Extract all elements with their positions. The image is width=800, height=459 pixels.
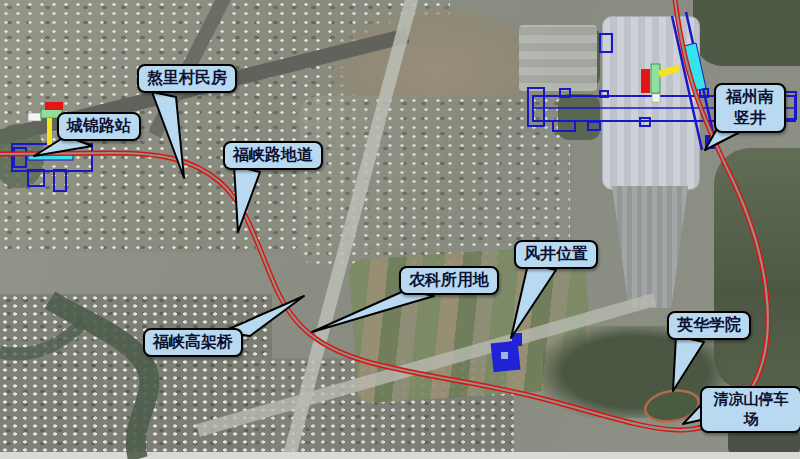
tail-vent-shaft — [511, 264, 556, 338]
white-marker — [652, 94, 660, 102]
yellow-marker — [659, 68, 679, 74]
callout-label: 福峡高架桥 — [153, 332, 233, 351]
callout-fuzhou-south-shaft: 福州南竖井 — [714, 83, 786, 133]
river-channel — [0, 300, 149, 459]
tail-yinghua — [673, 336, 704, 391]
red-marker — [45, 102, 63, 110]
yellow-marker-stem — [47, 118, 52, 145]
callout-label: 清凉山停车场 — [714, 390, 789, 428]
callout-label: 福峡路地道 — [233, 145, 313, 164]
annotated-satellite-map: 城锦路站 熬里村民房 福峡路地道 福峡高架桥 农科所用地 风井位置 英华学院 福… — [0, 0, 800, 459]
green-marker — [651, 64, 660, 93]
callout-label: 风井位置 — [524, 244, 588, 263]
vent-shaft-footprint — [491, 333, 522, 372]
callout-chengjin-road-station: 城锦路站 — [57, 112, 141, 141]
callout-label: 英华学院 — [677, 315, 741, 334]
callout-aoli-village-houses: 熬里村民房 — [137, 64, 237, 93]
callout-agri-science-institute-land: 农科所用地 — [399, 266, 499, 295]
callout-yinghua-college: 英华学院 — [667, 311, 751, 340]
callout-fuxia-road-underpass: 福峡路地道 — [223, 141, 323, 170]
callout-vent-shaft-location: 风井位置 — [514, 240, 598, 269]
white-marker — [28, 113, 41, 121]
map-overlay-graphics — [0, 0, 800, 459]
callout-label: 福州南竖井 — [726, 87, 774, 127]
tail-nongke — [312, 290, 434, 332]
callout-label: 城锦路站 — [67, 116, 131, 135]
callout-label: 熬里村民房 — [147, 68, 227, 87]
tail-aoli — [152, 92, 184, 178]
callout-fuxia-viaduct: 福峡高架桥 — [143, 328, 243, 357]
callout-qingliangshan-parking-lot: 清凉山停车场 — [700, 386, 800, 433]
red-marker — [641, 69, 650, 93]
callout-label: 农科所用地 — [409, 270, 489, 289]
